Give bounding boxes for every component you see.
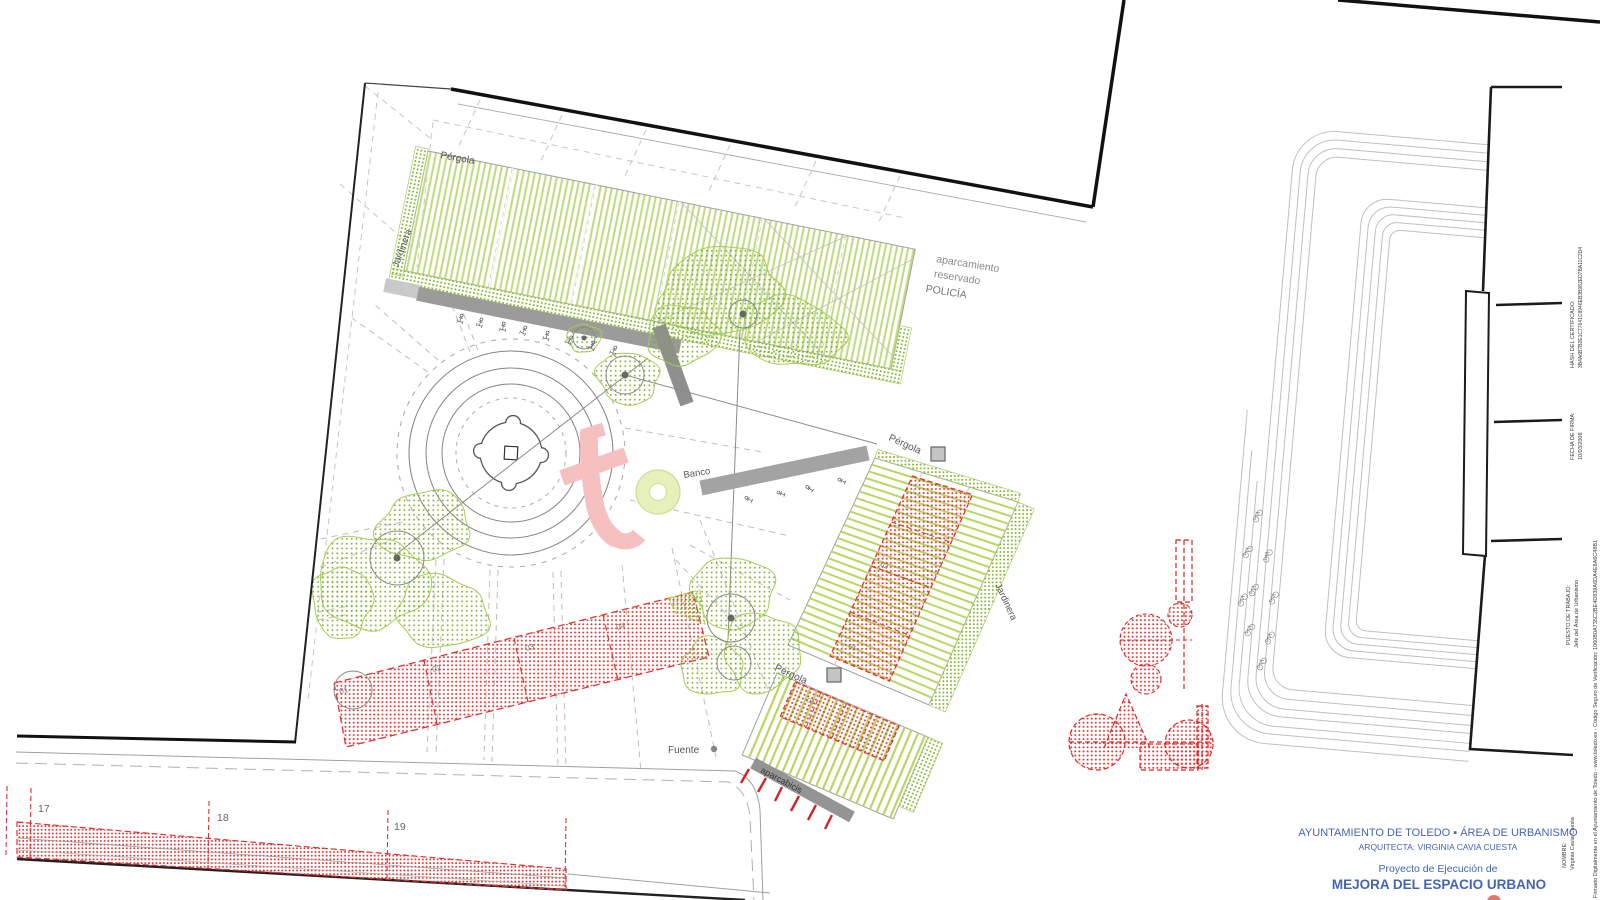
svg-text:MEJORA DEL ESPACIO URBANO: MEJORA DEL ESPACIO URBANO [1332,877,1546,892]
svg-text:AYUNTAMIENTO DE TOLEDO ▪ ÁREA: AYUNTAMIENTO DE TOLEDO ▪ ÁREA DE URBANIS… [1298,826,1578,839]
svg-text:18: 18 [217,812,229,824]
svg-text:17: 17 [38,803,50,815]
svg-text:19: 19 [394,821,406,833]
svg-text:Proyecto de Ejecución de: Proyecto de Ejecución de [1378,863,1497,875]
svg-text:Jefe del Área de Urbanismo: Jefe del Área de Urbanismo [1573,580,1580,648]
svg-text:Firmado Digitalmente en el Ayu: Firmado Digitalmente en el Ayuntamiento … [1593,540,1599,898]
svg-text:Fuente: Fuente [668,745,700,756]
svg-text:3B4A6B7B2E1C77641C8946EB3B982E: 3B4A6B7B2E1C77641C8946EB3B982ED7BA11C2D4 [1578,247,1584,368]
svg-text:PUESTO DE TRABAJO:: PUESTO DE TRABAJO: [1566,585,1572,645]
svg-text:Virginia Cavia Cuesta: Virginia Cavia Cuesta [1570,816,1576,870]
svg-text:FECHA DE FIRMA:: FECHA DE FIRMA: [1570,412,1576,460]
svg-text:10/03/2008: 10/03/2008 [1578,432,1584,460]
svg-text:ARQUITECTA: VIRGINIA CAVIA CUE: ARQUITECTA: VIRGINIA CAVIA CUESTA [1359,842,1518,852]
svg-text:HASH DEL CERTIFICADO:: HASH DEL CERTIFICADO: [1570,300,1576,368]
svg-text:NOMBRE:: NOMBRE: [1562,842,1568,868]
